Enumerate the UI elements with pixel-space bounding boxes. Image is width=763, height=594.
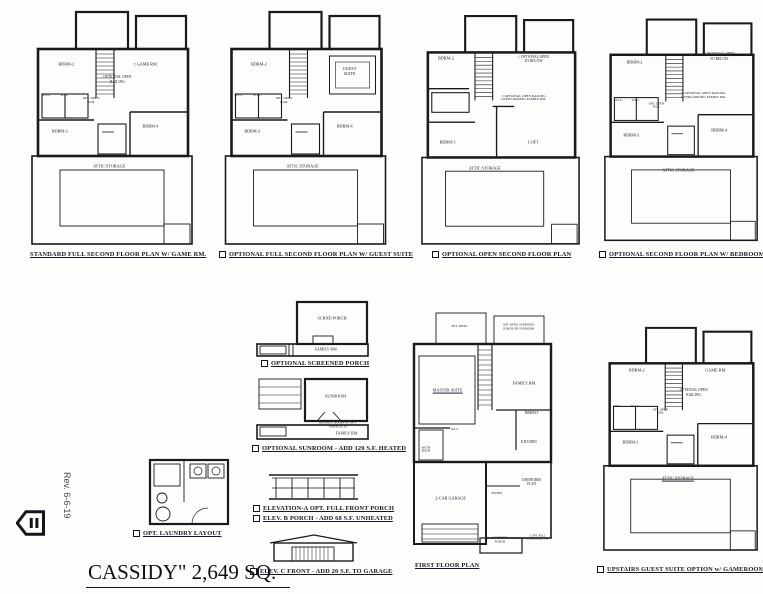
room-label: ATTIC STORAGE [662, 169, 694, 174]
floor-plan-drawing [420, 12, 582, 246]
room-label: W.I.C. [613, 405, 622, 409]
room-label: W.I.C. [234, 94, 243, 98]
room-label: FAMILY RM. [315, 348, 338, 353]
room-label: □ GAME RM. [133, 63, 158, 68]
room-label: GAME RM. [705, 368, 726, 373]
room-label: SCRND PORCH [317, 317, 347, 322]
room-label: OPTIONAL OPEN RAILING [676, 388, 712, 396]
caption-guest-suite-second: OPTIONAL FULL SECOND FLOOR PLAN W/ GUEST… [219, 251, 413, 258]
room-label: 2-CAR GARAGE [435, 496, 466, 501]
caption-screened-porch: OPTIONAL SCREENED PORCH [261, 360, 369, 367]
caption-text: UPSTAIRS GUEST SUITE OPTION w/ GAMEROOM [607, 566, 763, 573]
room-label: MSTR BATH [418, 446, 434, 453]
room-label: OPTIONAL OPEN RAILING [100, 75, 134, 83]
caption-gameroom-guest-suite: UPSTAIRS GUEST SUITE OPTION w/ GAMEROOM [597, 566, 763, 573]
room-label: BDRM-4 [711, 436, 727, 441]
room-label: BDRM-2 [438, 56, 454, 61]
caption-text: ELEVATION-A OPT. FULL FRONT PORCH [263, 505, 394, 512]
room-label: ATTIC STORAGE [469, 166, 501, 171]
room-label: FAMILY RM. [336, 432, 359, 437]
option-checkbox [261, 360, 268, 367]
room-label: OPT. OPEN RAIL [646, 102, 666, 109]
revision-note: Rev. 6-6-19 [62, 472, 72, 556]
room-label: OPT. OPEN RAIL [81, 97, 101, 105]
room-label: BDRM-2 [58, 63, 74, 68]
room-label: W.I.C. [60, 94, 69, 98]
plan-gameroom-guest-suite: BDRM-2GAME RM.OPTIONAL OPEN RAILINGOPT. … [602, 318, 760, 558]
room-label: GUEST SUITE [337, 67, 363, 77]
floor-plan-drawing [30, 8, 195, 246]
caption-text: ELEV. B PORCH - ADD 68 S.F. UNHEATED [263, 515, 393, 522]
caption-elev-a: ELEVATION-A OPT. FULL FRONT PORCH [253, 505, 394, 512]
builder-logo-icon [16, 508, 46, 538]
room-label: □ OPT. FULL PORCH ELEV. A [525, 534, 551, 541]
room-label: □ OPTIONAL OPEN RAILING OVERLOOKING FAMI… [672, 92, 734, 100]
room-label: BDRM-2 [629, 368, 645, 373]
room-label: BDRM-3 [623, 440, 639, 445]
room-label: BDRM-4 [143, 125, 159, 130]
caption-elev-b: ELEV. B PORCH - ADD 68 S.F. UNHEATED [253, 515, 393, 522]
room-label: DININGRM/ FLEX [519, 477, 545, 485]
room-label: W.I.C. [614, 99, 623, 103]
room-label: ENTRY [491, 492, 502, 496]
plan-laundry-layout [148, 458, 230, 526]
room-label: BDRM-3 [623, 134, 639, 139]
caption-open-second: OPTIONAL OPEN SECOND FLOOR PLAN [432, 251, 571, 258]
plan-sheet: BDRM-2□ GAME RM.OPTIONAL OPEN RAILINGOPT… [0, 0, 763, 594]
room-label: BDRM-3 [52, 129, 68, 134]
plan-open-second-floor: BDRM-2□ OPTIONAL OPEN TO BELOW□ OPTIONAL… [420, 12, 582, 246]
room-label: KITCHEN [521, 440, 537, 444]
caption-text: OPTIONAL OPEN SECOND FLOOR PLAN [442, 251, 571, 258]
caption-text: OPTIONAL SECOND FLOOR PLAN W/ BEDROOM-4 [609, 251, 763, 258]
option-checkbox [432, 251, 439, 258]
room-label: ATTIC STORAGE [93, 165, 125, 170]
room-label: OPT. PATIO [444, 325, 474, 329]
option-checkbox [252, 445, 259, 452]
room-label: BDRM-2 [626, 61, 642, 66]
caption-text: OPTIONAL SCREENED PORCH [271, 360, 369, 367]
room-label: COVERED PORCH [489, 537, 511, 544]
room-label: W.I.C. [631, 405, 640, 409]
plan-sunroom: SUNROOM(DOUBLE DOORS W/ OPT. FIREPLACE)F… [255, 375, 370, 441]
caption-text: FIRST FLOOR PLAN [415, 562, 479, 569]
room-label: MASTER SUITE [433, 388, 463, 393]
caption-first-floor: FIRST FLOOR PLAN [415, 562, 479, 569]
floor-plan-drawing [222, 8, 390, 246]
room-label: BDRM-2 [251, 63, 267, 68]
room-label: W.I.C. [451, 428, 460, 432]
plan-standard-second-floor: BDRM-2□ GAME RM.OPTIONAL OPEN RAILINGOPT… [30, 8, 195, 246]
room-label: □ OPTIONAL OPEN TO BELOW [703, 52, 735, 60]
room-label: FAMILY RM. [513, 381, 537, 386]
room-label: BDRM-3 [440, 141, 456, 146]
caption-laundry: OPT. LAUNDRY LAYOUT [133, 530, 222, 537]
room-label: (DOUBLE DOORS W/ OPT. FIREPLACE) [312, 421, 364, 428]
room-label: BRKFST [525, 411, 539, 415]
option-checkbox [599, 251, 606, 258]
caption-sunroom: OPTIONAL SUNROOM - ADD 120 S.F. HEATED [252, 445, 406, 452]
plan-first-floor: OPT. PATIOOPT. PATIO SCREENED PORCH OR S… [410, 310, 555, 555]
room-label: OPT. OPEN RAIL [650, 408, 670, 415]
room-label: SUNROOM [325, 394, 346, 399]
option-checkbox [597, 566, 604, 573]
sheet-title: CASSIDY" 2,649 SQ. [86, 560, 290, 588]
room-label: ATTIC STORAGE [287, 165, 319, 170]
room-label: BDRM-4 [711, 129, 727, 134]
room-label: OPT. OPEN RAIL [274, 97, 294, 105]
caption-bedroom4-second: OPTIONAL SECOND FLOOR PLAN W/ BEDROOM-4 [599, 251, 763, 258]
option-checkbox [253, 505, 260, 512]
room-label: LOFT [528, 141, 538, 146]
floor-plan-drawing [255, 300, 370, 358]
elevation-ab-drawing [266, 468, 361, 504]
floor-plan-drawing [603, 12, 760, 246]
caption-standard-second: STANDARD FULL SECOND FLOOR PLAN W/ GAME … [30, 251, 206, 258]
plan-screened-porch: SCRND PORCHFAMILY RM. [255, 300, 370, 358]
room-label: □ OPTIONAL OPEN RAILING OVERLOOKING FAMI… [493, 95, 555, 103]
plan-bedroom4-second-floor: BDRM-2□ OPTIONAL OPEN TO BELOW□ OPTIONAL… [603, 12, 760, 246]
caption-text: OPTIONAL SUNROOM - ADD 120 S.F. HEATED [262, 445, 406, 452]
option-checkbox [133, 530, 140, 537]
elevation-drawing [266, 468, 361, 504]
option-checkbox [253, 515, 260, 522]
room-label: □ OPTIONAL OPEN TO BELOW [516, 55, 550, 63]
caption-text: OPTIONAL FULL SECOND FLOOR PLAN W/ GUEST… [229, 251, 413, 258]
room-label: ATTIC STORAGE [662, 476, 694, 481]
floor-plan-drawing [602, 318, 760, 558]
room-label: W.I.C. [632, 99, 641, 103]
room-label: W.I.C. [42, 94, 51, 98]
option-checkbox [219, 251, 226, 258]
room-label: BDRM-4 [337, 125, 353, 130]
room-label: OPT. PATIO SCREENED PORCH OR SUNROOM [499, 324, 539, 331]
room-label: W.I.C. [253, 94, 262, 98]
caption-text: OPT. LAUNDRY LAYOUT [143, 530, 222, 537]
floor-plan-drawing [148, 458, 230, 526]
room-label: BDRM-3 [244, 129, 260, 134]
floor-plan-drawing [410, 310, 555, 555]
caption-text: STANDARD FULL SECOND FLOOR PLAN W/ GAME … [30, 251, 206, 258]
plan-guest-suite-second-floor: BDRM-2GUEST SUITEOPT. OPEN RAILW.I.C.W.I… [222, 8, 390, 246]
